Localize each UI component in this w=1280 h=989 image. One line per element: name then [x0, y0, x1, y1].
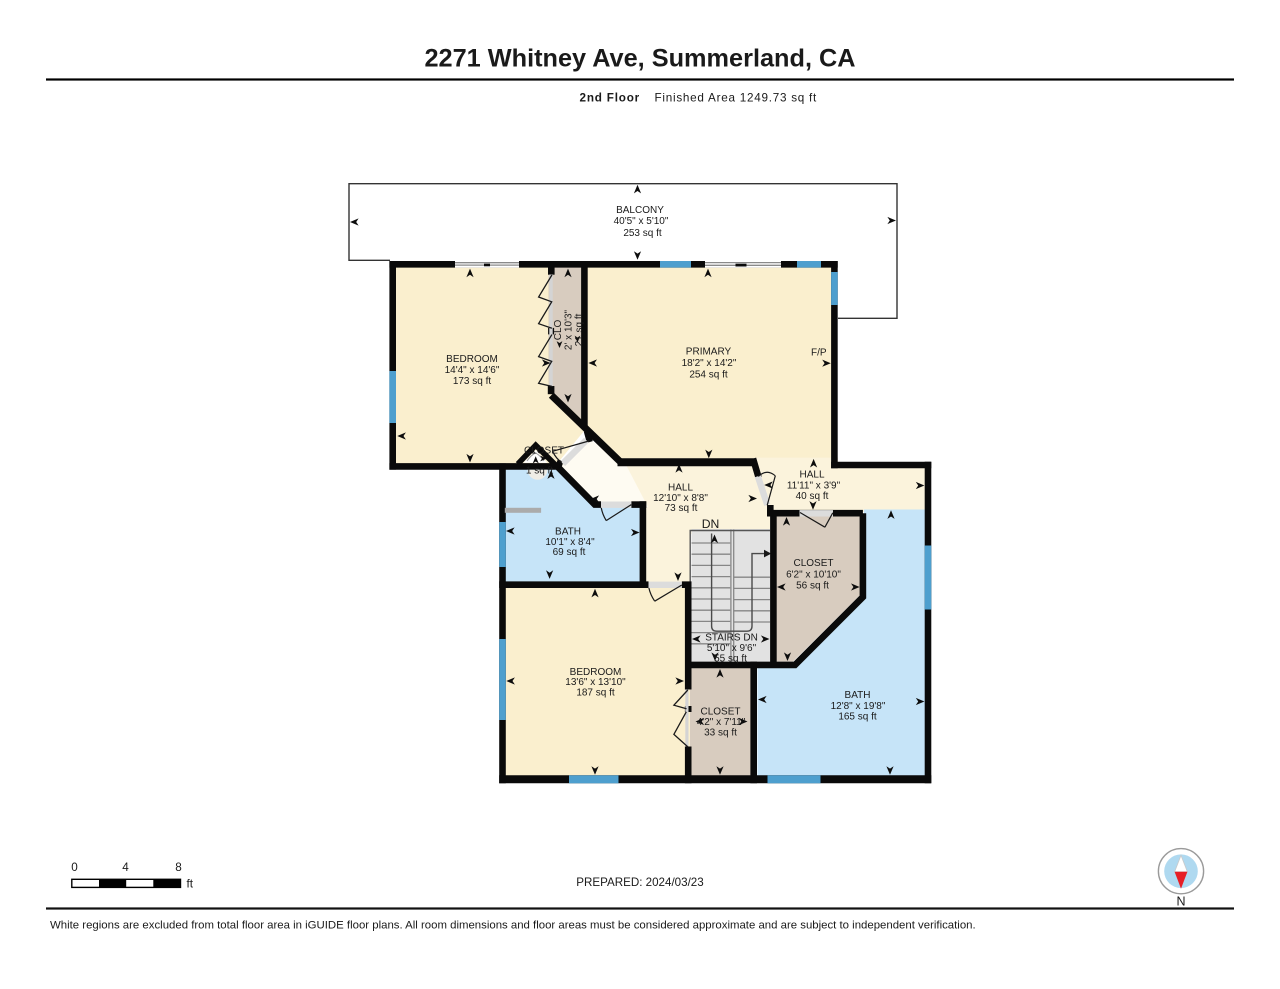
svg-text:N: N	[1176, 895, 1185, 909]
svg-text:40'5" x 5'10": 40'5" x 5'10"	[614, 216, 669, 227]
svg-text:165 sq ft: 165 sq ft	[838, 712, 877, 723]
svg-text:4: 4	[122, 861, 129, 874]
svg-text:PRIMARY: PRIMARY	[686, 347, 732, 358]
svg-text:73 sq ft: 73 sq ft	[665, 503, 698, 514]
svg-text:CLOSET: CLOSET	[700, 707, 740, 718]
svg-text:13'6" x 13'10": 13'6" x 13'10"	[565, 677, 626, 688]
svg-text:21 sq ft: 21 sq ft	[574, 313, 585, 346]
svg-text:173 sq ft: 173 sq ft	[453, 376, 492, 387]
svg-text:2nd Floor: 2nd Floor	[580, 92, 640, 105]
svg-text:BEDROOM: BEDROOM	[446, 354, 498, 365]
svg-text:253 sq ft: 253 sq ft	[623, 228, 662, 239]
svg-text:12'8" x 19'8": 12'8" x 19'8"	[831, 701, 886, 712]
svg-text:F/P: F/P	[811, 348, 827, 359]
svg-text:5'10" x 9'6": 5'10" x 9'6"	[707, 643, 757, 654]
svg-text:69 sq ft: 69 sq ft	[553, 547, 586, 558]
svg-text:40 sq ft: 40 sq ft	[796, 491, 829, 502]
svg-text:HALL: HALL	[668, 483, 693, 494]
svg-text:187 sq ft: 187 sq ft	[576, 688, 615, 699]
svg-text:2271 Whitney Ave, Summerland,: 2271 Whitney Ave, Summerland, CA	[424, 45, 855, 73]
svg-text:DN: DN	[702, 517, 720, 531]
svg-text:Finished Area 1249.73 sq ft: Finished Area 1249.73 sq ft	[655, 92, 818, 105]
svg-text:14'4" x 14'6": 14'4" x 14'6"	[445, 365, 500, 376]
svg-text:CLOSET: CLOSET	[793, 558, 833, 569]
svg-text:HALL: HALL	[799, 470, 824, 481]
svg-text:4'2" x 7'11": 4'2" x 7'11"	[697, 717, 746, 728]
svg-text:BATH: BATH	[845, 690, 871, 701]
svg-text:33 sq ft: 33 sq ft	[704, 728, 737, 739]
svg-text:CLOSET: CLOSET	[524, 446, 564, 457]
svg-text:1 sq ft: 1 sq ft	[526, 466, 553, 477]
svg-text:55 sq ft: 55 sq ft	[714, 654, 747, 665]
svg-text:White regions are excluded fro: White regions are excluded from total fl…	[50, 920, 976, 932]
svg-text:18'2" x 14'2": 18'2" x 14'2"	[682, 358, 737, 369]
svg-text:254 sq ft: 254 sq ft	[689, 370, 728, 381]
svg-text:BATH: BATH	[555, 527, 581, 538]
svg-text:56 sq ft: 56 sq ft	[796, 581, 829, 592]
svg-text:0: 0	[71, 861, 78, 874]
svg-text:CLO: CLO	[553, 319, 564, 340]
svg-text:8: 8	[175, 861, 182, 874]
svg-text:ft: ft	[187, 878, 194, 891]
svg-text:11'11" x 3'9": 11'11" x 3'9"	[787, 481, 841, 492]
svg-text:PREPARED: 2024/03/23: PREPARED: 2024/03/23	[576, 876, 703, 889]
svg-text:2' x 10'3": 2' x 10'3"	[564, 309, 575, 350]
svg-text:BALCONY: BALCONY	[616, 205, 664, 216]
svg-text:STAIRS DN: STAIRS DN	[705, 633, 758, 644]
svg-text:6'2" x 10'10": 6'2" x 10'10"	[786, 570, 841, 581]
